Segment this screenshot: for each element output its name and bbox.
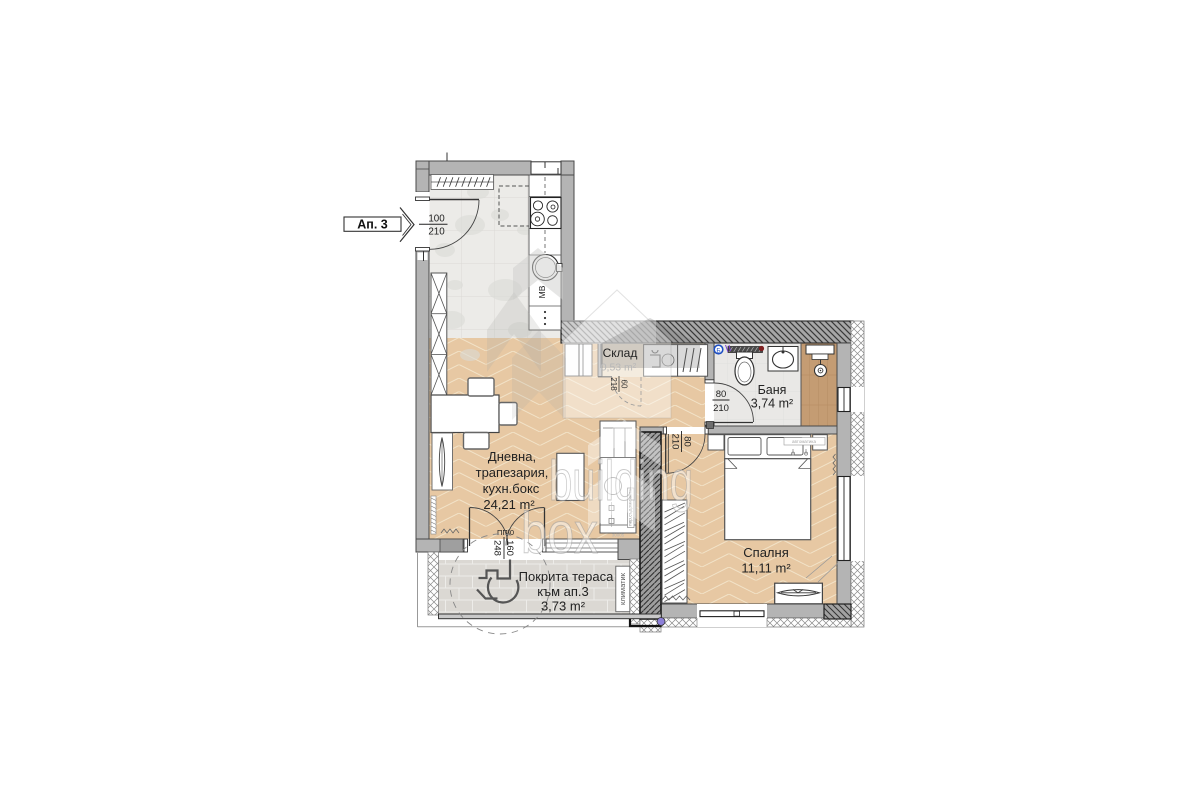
svg-text:24,21 m²: 24,21 m² <box>483 497 535 512</box>
svg-text:0,53 m²: 0,53 m² <box>601 362 637 374</box>
svg-text:210: 210 <box>713 403 729 414</box>
svg-text:210: 210 <box>670 434 681 450</box>
svg-text:80: 80 <box>716 389 727 400</box>
svg-text:160: 160 <box>504 540 515 556</box>
svg-text:ПП\0: ПП\0 <box>497 528 514 537</box>
svg-text:Спалня: Спалня <box>743 545 788 560</box>
svg-text:100: 100 <box>428 214 445 225</box>
svg-text:Баня: Баня <box>758 383 787 397</box>
svg-text:Ап. 3: Ап. 3 <box>357 218 388 232</box>
svg-text:210: 210 <box>428 227 445 238</box>
svg-text:60: 60 <box>620 380 629 389</box>
svg-text:трапезария,: трапезария, <box>476 465 549 480</box>
svg-text:3,73 m²: 3,73 m² <box>541 599 586 614</box>
svg-text:кухн.бокс: кухн.бокс <box>483 481 540 496</box>
svg-text:3,74 m²: 3,74 m² <box>751 397 793 411</box>
svg-text:80: 80 <box>682 436 693 447</box>
svg-text:Покрита тераса: Покрита тераса <box>519 569 614 584</box>
svg-text:218: 218 <box>609 377 618 391</box>
svg-text:към ап.3: към ап.3 <box>537 584 588 599</box>
svg-text:248: 248 <box>492 540 503 556</box>
svg-text:климатик: климатик <box>618 572 627 605</box>
svg-text:Б: Б <box>716 347 720 354</box>
svg-text:Склад: Склад <box>603 346 638 360</box>
svg-text:30005: 30005 <box>612 533 625 538</box>
svg-text:автоматика: автоматика <box>792 439 816 444</box>
svg-text:Дневна,: Дневна, <box>488 449 536 464</box>
svg-text:МВ: МВ <box>537 285 547 298</box>
svg-text:11,11 m²: 11,11 m² <box>741 561 791 576</box>
